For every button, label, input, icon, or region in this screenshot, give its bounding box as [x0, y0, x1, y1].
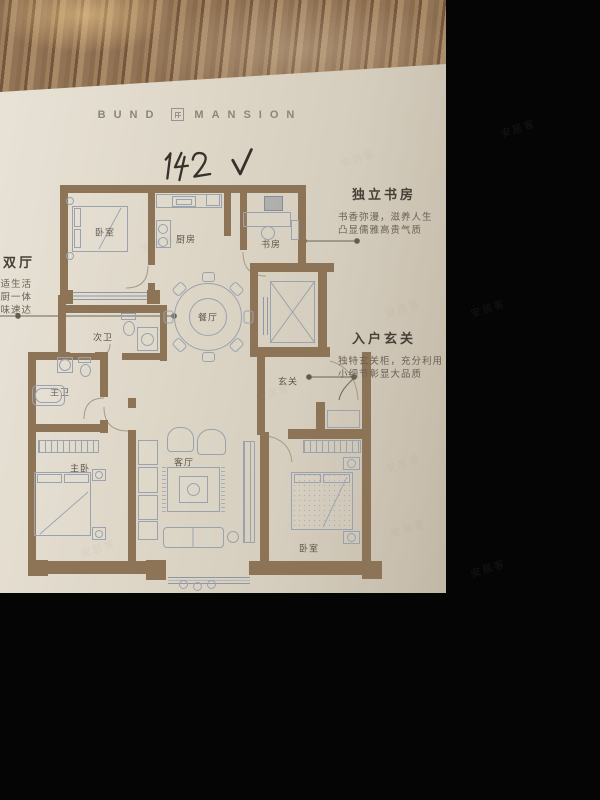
- sofa-seat: [138, 521, 158, 540]
- wall-segment: [58, 295, 66, 355]
- wall-segment: [249, 561, 371, 575]
- room-label-bath2: 次卫: [93, 331, 113, 344]
- annotation-line: 餐厨一体: [0, 291, 35, 304]
- floor-plan: 卧室 厨房 书房 餐厅 次卫 主卫 主卧 客厅 卧室 玄关: [0, 0, 446, 593]
- pillow: [323, 474, 350, 483]
- rug-medallion: [187, 483, 200, 496]
- wall-segment: [250, 263, 258, 356]
- lamp: [347, 459, 356, 468]
- annotation-heading: 大双厅: [0, 252, 35, 271]
- lamp: [66, 252, 74, 260]
- pillow: [74, 208, 81, 227]
- room-label-study: 书房: [261, 238, 281, 251]
- room-label-kitchen: 厨房: [176, 233, 196, 246]
- pillow: [37, 474, 62, 483]
- shelf: [291, 220, 299, 240]
- wall-segment: [148, 283, 155, 303]
- rug-fringe: [162, 467, 166, 512]
- entry-door-niche: [327, 410, 360, 428]
- annotation-line: 独特玄关柜，充分利用: [338, 355, 443, 368]
- wall-segment: [40, 561, 146, 574]
- flyer-paper: BUND MANSION 卧室 厨房 书房 餐厅: [0, 0, 446, 593]
- plant: [193, 582, 202, 591]
- cabinet: [264, 196, 283, 211]
- vanity-basin: [141, 333, 154, 346]
- washer-drum: [59, 359, 71, 371]
- sofa-seat: [138, 440, 158, 465]
- wall-segment: [362, 352, 371, 575]
- wall-segment: [60, 305, 167, 313]
- photo-of-floorplan-flyer: BUND MANSION 卧室 厨房 书房 餐厅: [0, 0, 600, 800]
- wardrobe: [38, 440, 99, 453]
- wall-segment: [128, 430, 136, 573]
- wall-segment: [298, 185, 306, 272]
- dining-chair: [202, 272, 215, 282]
- wall-segment: [224, 193, 231, 236]
- wall-segment: [316, 402, 325, 430]
- sofa: [163, 527, 224, 548]
- toilet-bowl: [123, 321, 135, 336]
- annotation-study: 独立书房 书香弥漫，滋养人生 凸显儒雅高贵气质: [338, 184, 433, 237]
- wall-segment: [260, 432, 269, 573]
- black-bar-bottom: [0, 593, 446, 800]
- wall-segment: [250, 347, 330, 357]
- lamp: [95, 530, 103, 538]
- lamp: [95, 471, 103, 479]
- annotation-line: 美味速达: [0, 304, 35, 317]
- lamp: [347, 533, 356, 542]
- wall-segment: [122, 353, 167, 360]
- armchair: [167, 427, 194, 452]
- plant: [207, 580, 216, 589]
- toilet-bowl: [80, 364, 91, 377]
- pillow: [74, 229, 81, 248]
- rug-fringe: [221, 467, 225, 512]
- wall-segment: [288, 429, 364, 439]
- armchair: [197, 429, 226, 455]
- annotation-double-hall: 大双厅 舒适生活 餐厨一体 美味速达: [0, 252, 35, 317]
- annotation-line: 凸显儒雅高贵气质: [338, 224, 433, 237]
- wall-segment: [60, 185, 306, 193]
- wall-segment: [148, 193, 155, 265]
- plant: [179, 580, 188, 589]
- wall-segment: [100, 352, 108, 397]
- toilet-tank: [121, 313, 136, 320]
- dining-chair: [243, 311, 253, 324]
- wall-segment: [318, 270, 327, 350]
- sink-bowl: [176, 199, 192, 205]
- toilet-tank: [78, 357, 91, 363]
- bathtub-inner: [35, 388, 62, 403]
- annotation-entry: 入户玄关 独特玄关柜，充分利用 小细节彰显大品质: [338, 328, 443, 381]
- pillow: [64, 474, 89, 483]
- desk: [243, 212, 291, 227]
- annotation-heading: 独立书房: [352, 184, 433, 203]
- wall-segment: [146, 560, 166, 580]
- dining-chair: [163, 311, 173, 324]
- room-label-bedroom2: 卧室: [299, 542, 319, 555]
- annotation-line: 书香弥漫，滋养人生: [338, 211, 433, 224]
- wall-segment: [362, 561, 382, 579]
- side-table: [227, 531, 239, 543]
- wall-segment: [128, 398, 136, 408]
- desk-chair: [261, 226, 275, 240]
- dining-chair: [202, 352, 215, 362]
- bay-window: [73, 292, 147, 300]
- dining-table-inner: [189, 298, 227, 336]
- wall-segment: [28, 424, 106, 432]
- shaft-door: [263, 297, 268, 335]
- shaft-box: [270, 281, 315, 343]
- appliance: [206, 194, 220, 206]
- annotation-line: 小细节彰显大品质: [338, 368, 443, 381]
- annotation-line: 舒适生活: [0, 278, 35, 291]
- sofa-seat: [138, 495, 158, 520]
- annotation-heading: 入户玄关: [352, 328, 443, 347]
- sofa-seat: [138, 467, 158, 493]
- lamp: [66, 197, 74, 205]
- pillow: [294, 474, 321, 483]
- wardrobe: [303, 440, 361, 453]
- tv-cabinet: [243, 441, 255, 543]
